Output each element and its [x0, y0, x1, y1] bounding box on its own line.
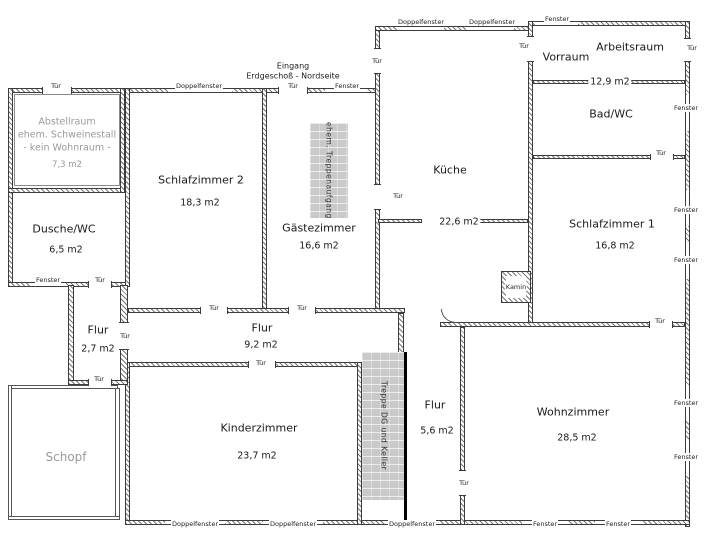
window-label: Fenster: [673, 256, 699, 264]
door-label: Tür: [255, 359, 267, 367]
wall: [378, 219, 422, 223]
wall: [125, 88, 130, 287]
wall: [125, 362, 130, 525]
wall: [68, 285, 74, 385]
wall: [128, 362, 363, 367]
wall: [478, 219, 528, 223]
entrance-note-line2: Erdgeschoß - Nordseite: [246, 72, 339, 81]
double-window-label: Doppelfenster: [175, 82, 223, 90]
double-window-label: Doppelfenster: [468, 18, 516, 26]
double-window-label: Doppelfenster: [171, 520, 219, 528]
stair-divider-line: [404, 352, 407, 525]
window-label: Fenster: [673, 104, 699, 112]
room-wohnzimmer-area: 28,5 m2: [557, 433, 596, 444]
room-kueche-area: 22,6 m2: [437, 217, 480, 228]
fireplace-label: Kamin: [505, 283, 527, 291]
room-dusche-area: 6,5 m2: [49, 245, 82, 256]
double-window-label: Doppelfenster: [388, 520, 436, 528]
door-label: Tür: [392, 192, 404, 200]
door-label: Tür: [119, 332, 131, 340]
wall: [8, 188, 128, 193]
door-label: Tür: [50, 82, 62, 90]
former-staircase-label: ehem. Treppenaufgang: [325, 122, 334, 219]
staircase-dg-keller: Treppe DG und Keller: [362, 352, 406, 500]
room-gaestezimmer-area: 16,6 m2: [299, 241, 338, 252]
room-wohnzimmer-name: Wohnzimmer: [537, 406, 609, 419]
entrance-note-line1: Eingang: [277, 62, 309, 71]
window-label: Fenster: [673, 206, 699, 214]
window: [685, 95, 690, 131]
wall: [262, 88, 267, 313]
room-flur-sued-area: 5,6 m2: [420, 426, 453, 437]
door-label: Tür: [654, 317, 666, 325]
shed-wall: [115, 388, 120, 520]
door-swing-arc: [441, 309, 456, 323]
wall: [398, 313, 404, 355]
room-schlafzimmer2-name: Schlafzimmer 2: [158, 174, 244, 187]
room-kinderzimmer-area: 23,7 m2: [237, 451, 276, 462]
room-schlafzimmer1-name: Schlafzimmer 1: [569, 218, 655, 231]
door-label: Tür: [93, 375, 105, 383]
window-label: Fenster: [35, 276, 61, 284]
room-arbeitsraum-area: 12,9 m2: [588, 77, 631, 88]
double-window-label: Doppelfenster: [397, 18, 445, 26]
floor-plan: Kamin ehem. Treppenaufgang Treppe DG und…: [0, 0, 714, 554]
window-label: Fenster: [673, 399, 699, 407]
room-abstellraum-line3: - kein Wohnraum -: [23, 143, 110, 154]
room-flur-mitte-area: 9,2 m2: [244, 340, 277, 351]
room-vorraum-name: Vorraum: [543, 51, 590, 64]
window-label: Fenster: [673, 453, 699, 461]
room-schopf-name: Schopf: [45, 450, 86, 464]
room-flur-sued-name: Flur: [425, 399, 446, 412]
door-label: Tür: [296, 304, 308, 312]
door-label: Tür: [287, 82, 299, 90]
door-label: Tür: [655, 149, 667, 157]
door-label: Tür: [518, 42, 530, 50]
room-bad-name: Bad/WC: [589, 108, 633, 121]
room-abstellraum-name: Abstellraum: [38, 117, 95, 128]
staircase-dg-keller-label: Treppe DG und Keller: [380, 381, 389, 470]
room-schlafzimmer1-area: 16,8 m2: [595, 241, 634, 252]
room-abstellraum-area: 7,3 m2: [52, 160, 82, 170]
double-window-label: Doppelfenster: [269, 520, 317, 528]
window: [466, 26, 514, 31]
room-kueche-name: Küche: [433, 164, 466, 177]
window: [398, 26, 444, 31]
room-gaestezimmer-name: Gästezimmer: [282, 222, 356, 235]
window-label: Fenster: [532, 520, 558, 528]
former-staircase: ehem. Treppenaufgang: [310, 123, 348, 218]
room-dusche-name: Dusche/WC: [32, 223, 95, 236]
wall: [128, 308, 405, 313]
room-flur-klein-name: Flur: [88, 324, 109, 337]
window-label: Fenster: [544, 15, 570, 23]
door-label: Tür: [208, 304, 220, 312]
door-opening: [374, 184, 381, 210]
room-flur-klein-area: 2,7 m2: [81, 344, 114, 355]
shed-wall: [8, 516, 120, 520]
shed-wall: [8, 385, 12, 520]
door-label: Tür: [94, 276, 106, 284]
room-kinderzimmer-name: Kinderzimmer: [220, 422, 297, 435]
room-flur-mitte-name: Flur: [252, 322, 273, 335]
door-label: Tür: [686, 44, 698, 52]
window-label: Fenster: [605, 520, 631, 528]
room-arbeitsraum-name: Arbeitsraum: [596, 41, 664, 54]
window-label: Fenster: [334, 82, 360, 90]
room-schlafzimmer2-area: 18,3 m2: [180, 198, 219, 209]
door-label: Tür: [458, 479, 470, 487]
room-abstellraum-line2: ehem. Schweinestall: [18, 130, 116, 141]
door-label: Tür: [371, 57, 383, 65]
